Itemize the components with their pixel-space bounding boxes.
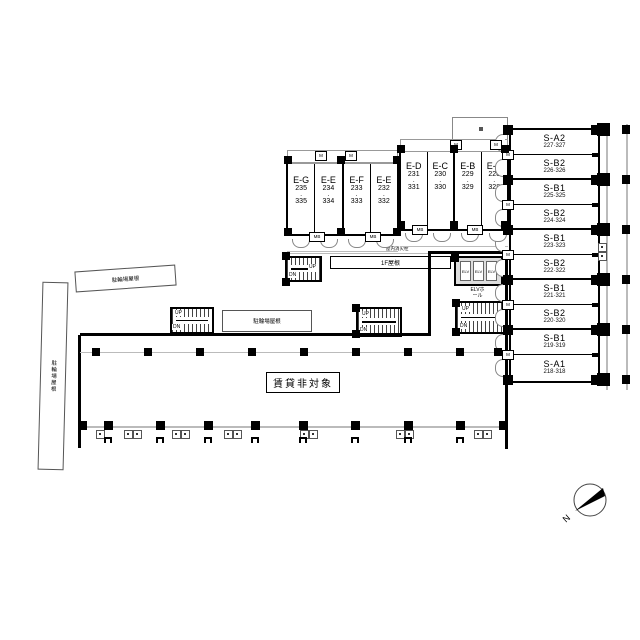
footing-mark — [204, 437, 212, 443]
unit-name: S-B1 — [543, 334, 565, 343]
vent-box — [224, 430, 233, 439]
e-unit-cell: E-F233・333 — [344, 164, 371, 234]
column-mark — [393, 228, 401, 236]
unit-name: S-A2 — [543, 134, 565, 143]
unit-name: E-D — [401, 161, 427, 171]
vent-box — [233, 430, 242, 439]
column-mark — [622, 125, 630, 134]
vent-box — [598, 252, 607, 261]
column-mark — [622, 375, 630, 384]
column-mark — [251, 421, 260, 430]
wall-tick — [592, 303, 598, 307]
door-arc — [433, 233, 451, 242]
e-unit-cell: E-C230・330 — [428, 152, 456, 229]
roof-1f-label: 1F屋根 — [381, 258, 400, 267]
column-mark — [622, 225, 630, 234]
column-mark — [597, 223, 610, 236]
dn-label: DN — [359, 327, 368, 333]
unit-name: E-C — [428, 161, 454, 171]
meter-box-mb: MB — [467, 225, 483, 235]
wall-tick — [592, 353, 598, 357]
column-mark — [622, 175, 630, 184]
unit-name: S-B1 — [543, 234, 565, 243]
unit-name: S-A1 — [543, 360, 565, 369]
unit-room-numbers: 223·323 — [543, 243, 565, 250]
column-mark — [299, 421, 308, 430]
e-building-right: E-D231・331E-C230・330E-B229・329E-A228・328 — [399, 151, 509, 231]
wall-tick — [592, 153, 598, 157]
dn-label: DN — [459, 323, 468, 329]
unit-number-lower: 335 — [288, 198, 314, 206]
tower-unit-row: S-B1225·325 — [511, 180, 598, 205]
e-unit-cell: E-G235・335 — [288, 164, 315, 234]
wall-tick — [592, 253, 598, 257]
floor-plan: 駐輪場屋根 駐輪場屋根 駐輪場屋根 E-G235・335E-E234・334E-… — [0, 0, 640, 640]
column-mark — [597, 273, 610, 286]
meter-box-mb: MB — [412, 225, 428, 235]
dn-label: DN — [172, 324, 181, 330]
unit-number-upper: 235 — [288, 185, 314, 193]
wall-tick — [592, 203, 598, 207]
meter-box: M — [502, 250, 514, 260]
north-label: N — [561, 513, 573, 525]
column-mark — [452, 328, 460, 336]
meter-box: M — [315, 151, 327, 161]
tower-unit-row: S-A1218·318 — [511, 355, 598, 380]
column-mark — [337, 156, 345, 164]
footing-mark — [156, 437, 164, 443]
unit-name: E-E — [371, 175, 397, 185]
column-mark — [597, 123, 610, 136]
unit-name: S-B2 — [543, 159, 565, 168]
elv-label: ELV — [475, 269, 482, 274]
column-mark — [451, 254, 459, 262]
column-mark — [282, 278, 290, 286]
column-mark — [282, 252, 290, 260]
elevator-cell: ELV — [460, 261, 471, 281]
column-mark — [597, 173, 610, 186]
unit-name: E-G — [288, 175, 314, 185]
column-mark — [456, 421, 465, 430]
column-mark — [503, 175, 513, 185]
column-mark — [397, 221, 405, 229]
edge-line — [78, 426, 508, 428]
column-mark — [597, 323, 610, 336]
tower-unit-row: S-B2220·320 — [511, 305, 598, 330]
edge-line — [400, 246, 508, 247]
vent-box — [474, 430, 483, 439]
tower-unit-row: S-B2222·322 — [511, 255, 598, 280]
bike-shed-roof-slanted: 駐輪場屋根 — [74, 265, 176, 293]
column-mark — [494, 348, 502, 356]
tower-unit-row: S-B1223·323 — [511, 230, 598, 255]
tower-unit-row: S-B2224·324 — [511, 205, 598, 230]
meter-box: M — [502, 350, 514, 360]
unit-name: S-B2 — [543, 259, 565, 268]
bike-shed-roof-label: 駐輪場屋根 — [253, 317, 281, 325]
up-label: UP — [361, 311, 370, 317]
e-building-left: E-G235・335E-E234・334E-F233・333E-E232・332 — [286, 163, 399, 236]
vent-box — [133, 430, 142, 439]
vent-box — [172, 430, 181, 439]
unit-room-numbers: 219·319 — [543, 343, 565, 350]
column-mark — [404, 348, 412, 356]
stair-arrow — [360, 318, 398, 325]
edge-line — [287, 253, 428, 254]
bike-shed-roof-horizontal: 駐輪場屋根 — [222, 310, 312, 332]
unit-name: S-B2 — [543, 309, 565, 318]
footing-mark — [404, 437, 412, 443]
column-mark — [300, 348, 308, 356]
e-unit-cell: E-E232・332 — [371, 164, 397, 234]
unit-room-numbers: 226·326 — [543, 168, 565, 175]
footing-mark — [251, 437, 259, 443]
column-mark — [622, 275, 630, 284]
column-mark — [352, 304, 360, 312]
column-mark — [503, 125, 513, 135]
unit-number-lower: 330 — [428, 184, 454, 192]
unit-name: E-B — [455, 161, 481, 171]
unit-number-upper: 229 — [455, 171, 481, 179]
unit-number-lower: 331 — [401, 184, 427, 192]
up-label: UP — [461, 306, 470, 312]
column-mark — [352, 348, 360, 356]
unit-number-upper: 230 — [428, 171, 454, 179]
column-mark — [503, 325, 513, 335]
s-tower: S-A2227·327S-B2226·326S-B1225·325S-B2224… — [509, 128, 600, 383]
column-mark — [104, 421, 113, 430]
meter-box: M — [502, 300, 514, 310]
vent-box — [181, 430, 190, 439]
column-mark — [503, 275, 513, 285]
elevator-cell: ELV — [473, 261, 484, 281]
meter-box-mb: MB — [365, 232, 381, 242]
column-mark — [204, 421, 213, 430]
column-mark — [284, 156, 292, 164]
unit-room-numbers: 221·321 — [543, 293, 565, 300]
unit-number-upper: 234 — [315, 185, 341, 193]
column-mark — [404, 421, 413, 430]
e-unit-cell: E-E234・334 — [315, 164, 343, 234]
column-mark — [248, 348, 256, 356]
door-arc — [292, 239, 310, 248]
footing-mark — [351, 437, 359, 443]
elv-label: ELV — [462, 269, 469, 274]
tower-unit-row: S-B2226·326 — [511, 155, 598, 180]
column-mark — [393, 156, 401, 164]
unit-room-numbers: 218·318 — [543, 369, 565, 376]
wall-segment — [80, 333, 430, 336]
footing-mark — [299, 437, 307, 443]
unit-room-numbers: 220·320 — [543, 318, 565, 325]
column-mark — [144, 348, 152, 356]
elevator-hall-label: ELVホール — [469, 287, 486, 299]
vent-box — [309, 430, 318, 439]
unit-number-upper: 233 — [344, 185, 370, 193]
meter-box: M — [502, 200, 514, 210]
wall-segment — [428, 251, 508, 254]
column-mark — [337, 228, 345, 236]
vent-box — [598, 243, 607, 252]
column-mark — [501, 221, 509, 229]
column-mark — [450, 145, 458, 153]
edge-line — [287, 251, 398, 252]
unit-number-lower: 329 — [455, 184, 481, 192]
column-mark — [622, 325, 630, 334]
footing-mark — [456, 437, 464, 443]
column-mark — [501, 145, 509, 153]
bike-shed-roof-vertical: 駐輪場屋根 — [38, 282, 69, 471]
column-mark — [397, 145, 405, 153]
column-mark — [452, 299, 460, 307]
not-for-lease-label: 賃貸非対象 — [266, 372, 340, 393]
meter-box-mb: MB — [309, 232, 325, 242]
bike-shed-roof-label: 駐輪場屋根 — [49, 360, 58, 393]
unit-name: S-B1 — [543, 284, 565, 293]
bike-shed-roof-label: 駐輪場屋根 — [111, 274, 139, 284]
north-arrow-icon — [575, 488, 605, 511]
column-mark — [196, 348, 204, 356]
column-mark — [503, 375, 513, 385]
unit-room-numbers: 225·325 — [543, 193, 565, 200]
unit-number-lower: 332 — [371, 198, 397, 206]
compass: N — [558, 474, 618, 534]
unit-room-numbers: 222·322 — [543, 268, 565, 275]
unit-name: E-E — [315, 175, 341, 185]
column-mark — [456, 348, 464, 356]
unit-number-lower: 333 — [344, 198, 370, 206]
column-mark — [499, 421, 508, 430]
wall-segment — [428, 251, 431, 336]
edge-line — [626, 124, 628, 390]
stair-arrow — [174, 317, 210, 324]
unit-number-lower: 334 — [315, 198, 341, 206]
unit-room-numbers: 227·327 — [543, 143, 565, 150]
up-label: UP — [174, 310, 183, 316]
unit-number-upper: 231 — [401, 171, 427, 179]
tower-unit-row: S-A2227·327 — [511, 130, 598, 155]
unit-number-upper: 232 — [371, 185, 397, 193]
column-mark — [351, 421, 360, 430]
column-mark — [156, 421, 165, 430]
unit-name: S-B2 — [543, 209, 565, 218]
e-unit-cell: E-D231・331 — [401, 152, 428, 229]
vent-box — [124, 430, 133, 439]
door-arc — [348, 239, 366, 248]
unit-name: S-B1 — [543, 184, 565, 193]
unit-name: E-F — [344, 175, 370, 185]
column-mark — [284, 228, 292, 236]
unit-room-numbers: 224·324 — [543, 218, 565, 225]
up-label: UP — [308, 264, 317, 270]
meter-box: M — [345, 151, 357, 161]
column-mark — [450, 221, 458, 229]
tower-unit-row: S-B1219·319 — [511, 330, 598, 355]
roof-1f-area: 1F屋根 — [330, 256, 451, 269]
e-unit-cell: E-B229・329 — [455, 152, 482, 229]
column-mark — [352, 330, 360, 338]
column-mark — [92, 348, 100, 356]
vent-box — [483, 430, 492, 439]
tower-unit-row: S-B1221·321 — [511, 280, 598, 305]
column-mark — [597, 373, 610, 386]
footing-mark — [104, 437, 112, 443]
column-mark — [78, 421, 87, 430]
